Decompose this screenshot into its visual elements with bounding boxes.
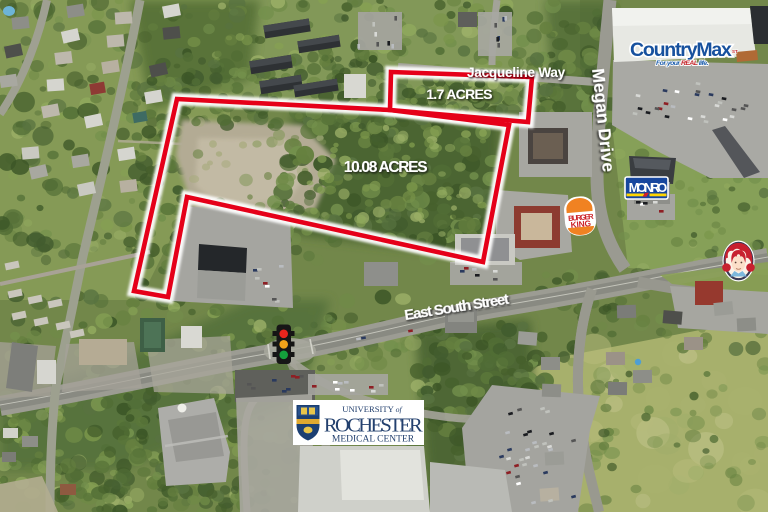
svg-text:10.08 ACRES: 10.08 ACRES <box>344 159 427 176</box>
svg-text:MONRO: MONRO <box>629 180 668 195</box>
svg-text:1.7 ACRES: 1.7 ACRES <box>426 86 492 102</box>
svg-text:MEDICAL CENTER: MEDICAL CENTER <box>332 435 415 445</box>
svg-text:ST: ST <box>732 49 738 54</box>
svg-text:Jacqueline Way: Jacqueline Way <box>467 65 566 80</box>
svg-text:For your REAL life.: For your REAL life. <box>656 60 709 67</box>
svg-text:ROCHESTER: ROCHESTER <box>324 415 423 437</box>
svg-text:CountryMax: CountryMax <box>630 39 732 61</box>
svg-text:UNIVERSITY of: UNIVERSITY of <box>342 404 403 414</box>
svg-text:KING: KING <box>570 218 591 230</box>
